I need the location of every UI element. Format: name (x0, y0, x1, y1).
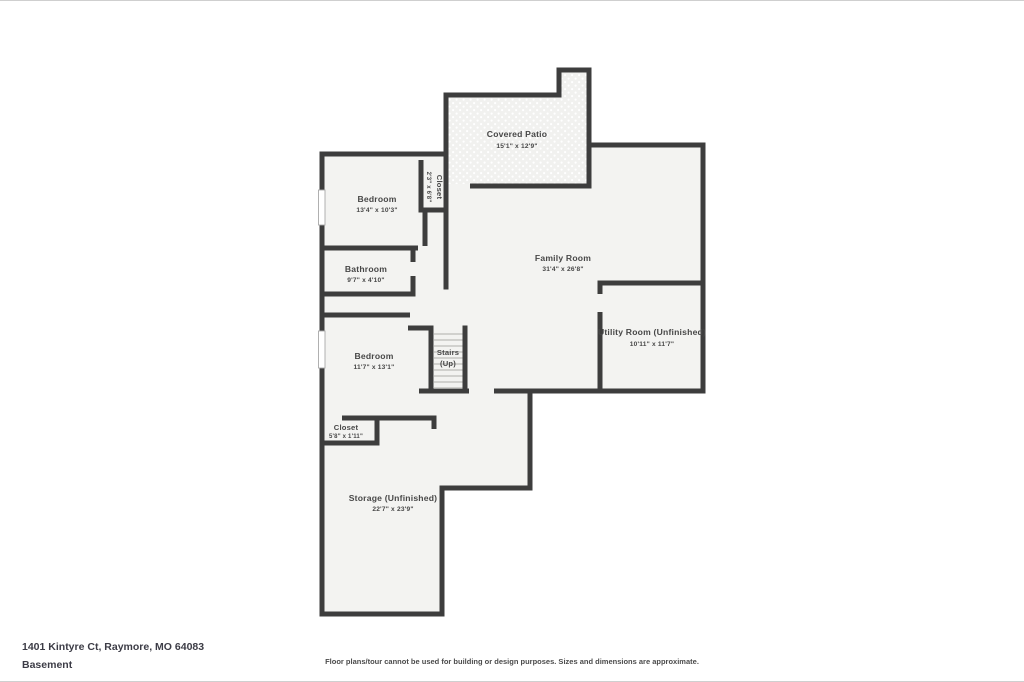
room-label-bedroom-lower: Bedroom (354, 351, 393, 361)
room-dims-storage: 22'7" x 23'9" (372, 506, 413, 513)
room-dims-bedroom-lower: 11'7" x 13'1" (354, 364, 395, 371)
room-dims-bedroom-upper: 13'4" x 10'3" (356, 207, 397, 214)
room-label-closet-lower: Closet (334, 423, 359, 432)
covered-patio-area (448, 72, 587, 184)
room-label-stairs: Stairs (437, 348, 459, 357)
window-marker (319, 190, 326, 225)
floorplan-page: Covered Patio 15'1" x 12'9" Closet 2'3" … (0, 0, 1024, 682)
room-label-covered-patio: Covered Patio (487, 129, 547, 139)
room-label-bathroom: Bathroom (345, 264, 387, 274)
room-label-bedroom-upper: Bedroom (357, 194, 396, 204)
window-marker (319, 331, 326, 368)
room-dims-family-room: 31'4" x 26'8" (542, 266, 583, 273)
room-dims-utility-room: 10'11" x 11'7" (630, 341, 674, 348)
disclaimer-text: Floor plans/tour cannot be used for buil… (0, 658, 1024, 666)
room-dims-bathroom: 9'7" x 4'10" (347, 277, 384, 284)
room-label-utility-room: Utility Room (Unfinished) (598, 327, 706, 337)
address-text: 1401 Kintyre Ct, Raymore, MO 64083 (22, 642, 204, 653)
room-dims-closet-upper: 2'3" x 6'8" (425, 172, 431, 203)
room-label-family-room: Family Room (535, 253, 591, 263)
floorplan-svg: Covered Patio 15'1" x 12'9" Closet 2'3" … (0, 0, 1024, 682)
room-label-storage: Storage (Unfinished) (349, 493, 438, 503)
room-dims-closet-lower: 5'8" x 1'11" (329, 434, 363, 440)
room-label-closet-upper: Closet (435, 175, 444, 200)
room-dims-covered-patio: 15'1" x 12'9" (496, 143, 537, 150)
room-dims-stairs: (Up) (440, 359, 456, 368)
